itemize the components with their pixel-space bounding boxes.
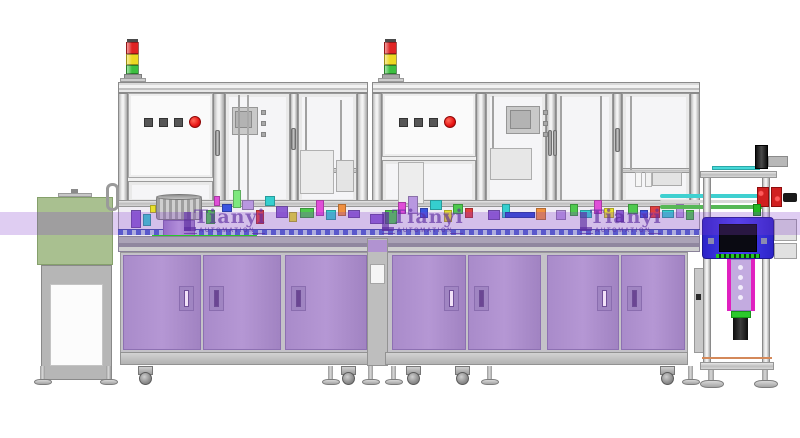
emergency-stop-button[interactable] [189,116,201,128]
machine-line-render: TianyiAUTOMATIONTianyiAUTOMATIONTianyiAU… [0,0,800,438]
panel-square-button[interactable] [159,118,168,127]
emergency-stop-button[interactable] [444,116,456,128]
panel-square-button[interactable] [174,118,183,127]
panel-square-button[interactable] [399,118,408,127]
panel-square-button[interactable] [414,118,423,127]
panel-square-button[interactable] [144,118,153,127]
panel-square-button[interactable] [429,118,438,127]
panel-buttons [0,0,800,438]
